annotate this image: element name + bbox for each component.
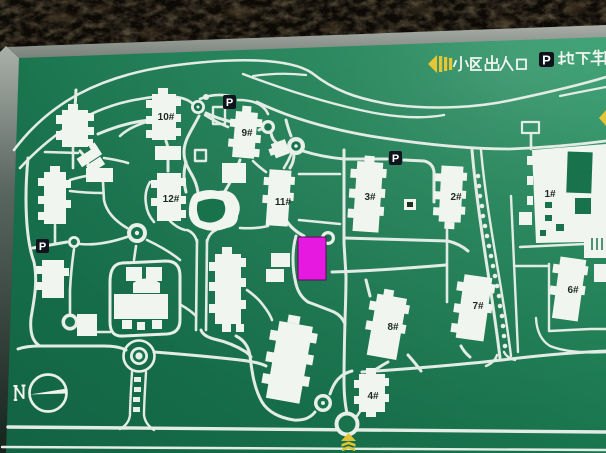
svg-text:3#: 3# [364,192,376,203]
svg-text:2#: 2# [450,192,462,203]
svg-text:8#: 8# [387,322,399,333]
svg-text:10#: 10# [158,112,175,123]
svg-text:11#: 11# [275,197,292,208]
svg-text:9#: 9# [241,128,253,139]
svg-text:P: P [542,53,551,68]
svg-text:4#: 4# [367,391,379,402]
svg-text:7#: 7# [472,301,484,312]
svg-text:6#: 6# [567,285,579,296]
svg-text:P: P [226,97,233,109]
svg-text:1#: 1# [544,189,556,200]
svg-text:P: P [392,153,399,165]
svg-text:12#: 12# [163,194,180,205]
svg-text:P: P [39,241,46,253]
